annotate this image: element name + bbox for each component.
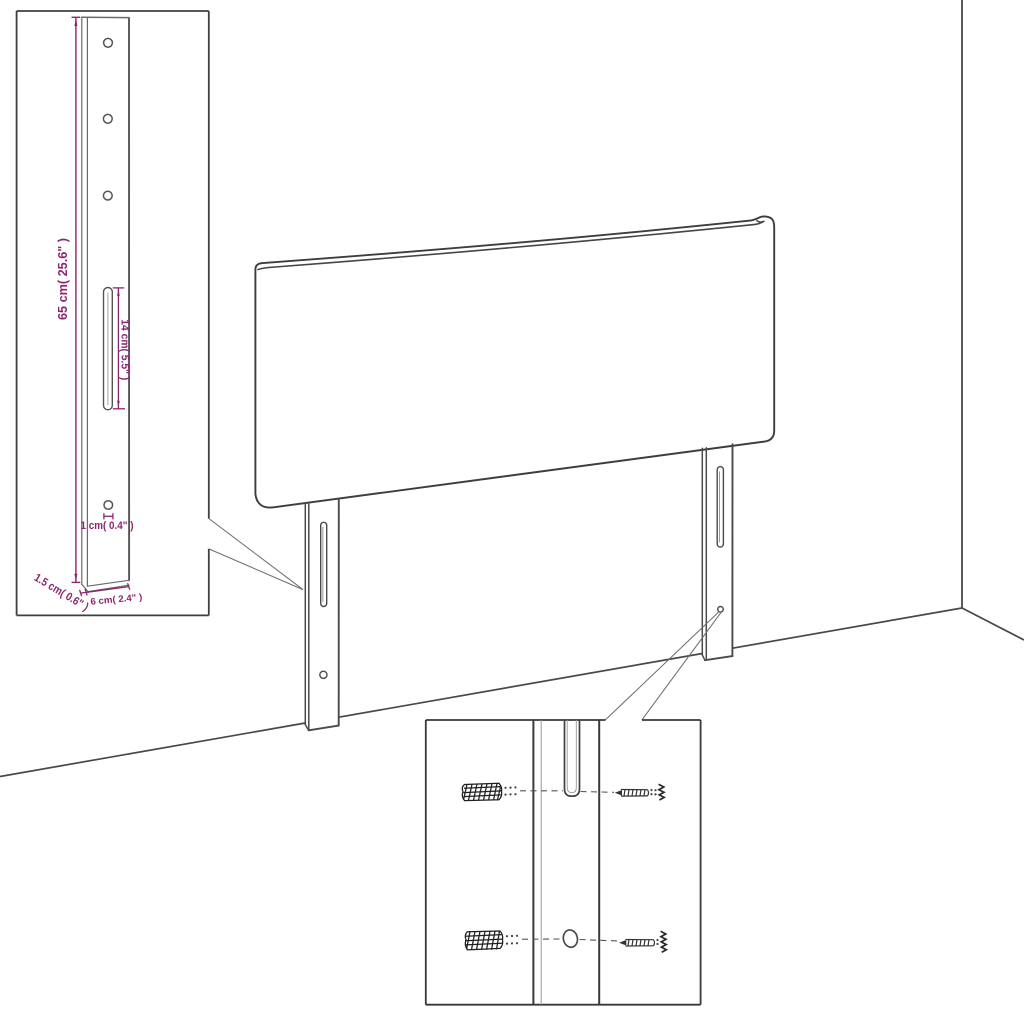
svg-text:1 cm( 0.4" ): 1 cm( 0.4" ) — [81, 520, 134, 532]
svg-text:65 cm( 25.6" ): 65 cm( 25.6" ) — [55, 238, 70, 320]
svg-text:14 cm( 5.5" ): 14 cm( 5.5" ) — [119, 319, 131, 380]
